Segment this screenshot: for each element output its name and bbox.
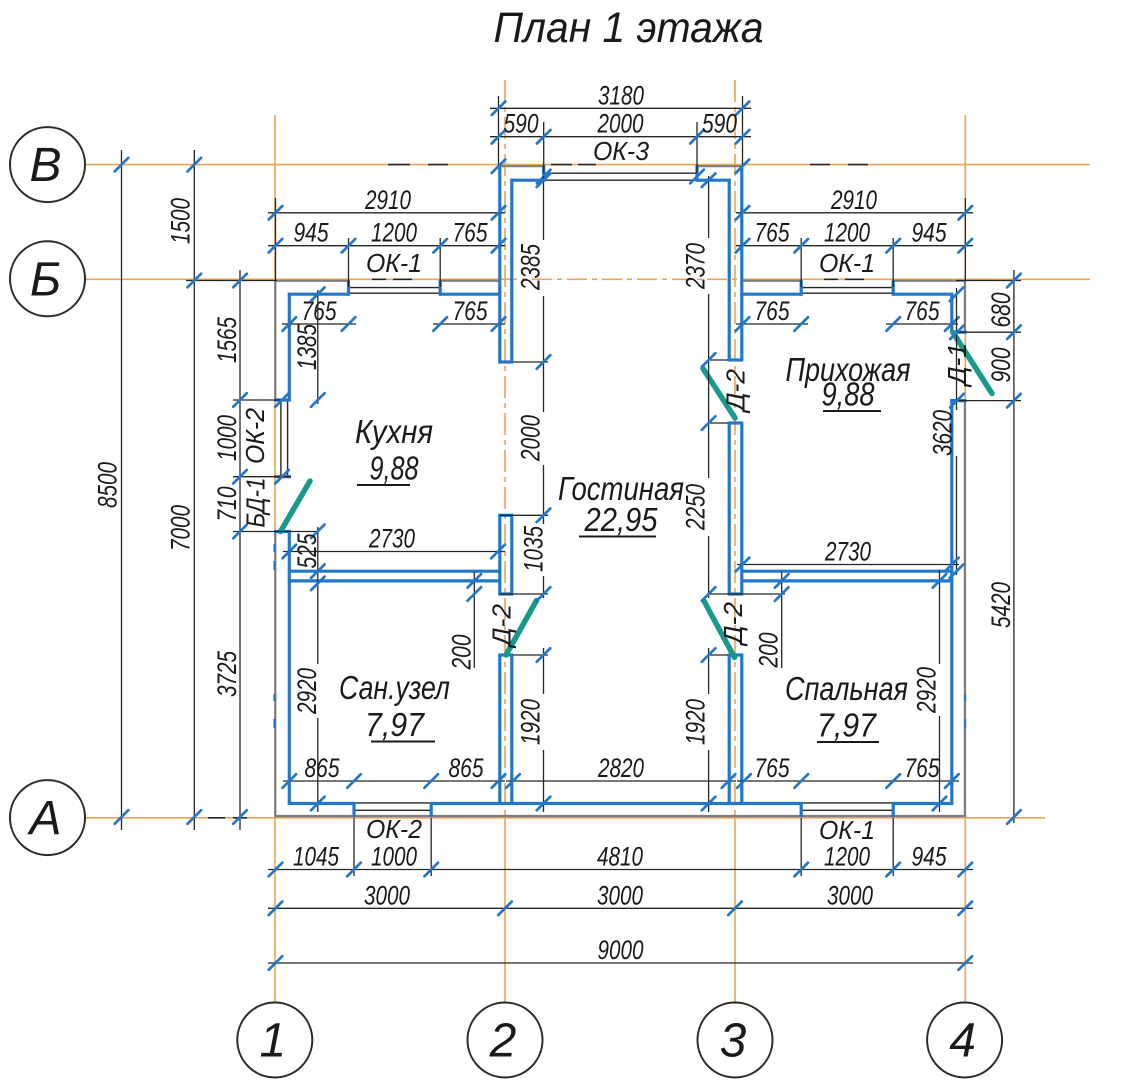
- svg-text:ОК-1: ОК-1: [819, 815, 875, 845]
- svg-text:1: 1: [259, 1015, 286, 1068]
- svg-text:4: 4: [949, 1015, 976, 1068]
- svg-text:ОК-2: ОК-2: [240, 407, 270, 464]
- svg-text:2370: 2370: [681, 243, 711, 290]
- svg-text:2000: 2000: [516, 415, 546, 462]
- svg-text:765: 765: [755, 296, 791, 326]
- svg-text:590: 590: [504, 109, 539, 139]
- svg-text:Кухня: Кухня: [355, 413, 433, 450]
- svg-text:1565: 1565: [212, 316, 242, 363]
- svg-text:765: 765: [453, 218, 489, 248]
- svg-text:ОК-2: ОК-2: [366, 814, 423, 844]
- svg-text:А: А: [26, 792, 61, 845]
- svg-text:7000: 7000: [165, 505, 195, 551]
- svg-text:Д-2: Д-2: [721, 368, 751, 414]
- svg-text:2730: 2730: [368, 524, 415, 554]
- svg-text:5420: 5420: [986, 582, 1016, 628]
- svg-text:3725: 3725: [212, 650, 242, 697]
- svg-text:900: 900: [986, 348, 1016, 383]
- svg-text:200: 200: [446, 635, 476, 671]
- svg-text:3620: 3620: [928, 410, 958, 456]
- svg-text:9,88: 9,88: [822, 376, 876, 413]
- svg-text:3: 3: [720, 1015, 747, 1068]
- svg-text:765: 765: [905, 753, 941, 783]
- svg-text:2920: 2920: [292, 668, 322, 715]
- svg-text:200: 200: [754, 633, 784, 669]
- svg-text:765: 765: [755, 218, 791, 248]
- svg-text:1200: 1200: [824, 842, 870, 872]
- svg-text:22,95: 22,95: [584, 501, 658, 538]
- svg-text:Б: Б: [30, 253, 61, 306]
- svg-text:765: 765: [453, 296, 489, 326]
- svg-text:945: 945: [294, 218, 330, 248]
- svg-text:ОК-1: ОК-1: [819, 248, 875, 278]
- svg-text:1000: 1000: [371, 842, 417, 872]
- svg-text:1000: 1000: [212, 415, 242, 461]
- svg-text:9,88: 9,88: [370, 450, 419, 487]
- svg-text:1035: 1035: [519, 525, 549, 572]
- svg-text:Сан.узел: Сан.узел: [339, 669, 450, 706]
- svg-text:2920: 2920: [912, 667, 942, 714]
- svg-text:2820: 2820: [597, 753, 644, 783]
- svg-text:1200: 1200: [371, 218, 417, 248]
- svg-text:2910: 2910: [364, 185, 411, 215]
- svg-text:945: 945: [912, 842, 948, 872]
- svg-text:Спальная: Спальная: [785, 670, 908, 707]
- svg-text:7,97: 7,97: [817, 707, 878, 744]
- svg-text:590: 590: [702, 109, 737, 139]
- svg-text:1920: 1920: [516, 699, 546, 745]
- svg-text:945: 945: [912, 218, 948, 248]
- svg-text:2910: 2910: [830, 185, 877, 215]
- svg-text:765: 765: [755, 753, 791, 783]
- svg-text:3180: 3180: [598, 80, 644, 110]
- svg-text:710: 710: [212, 487, 242, 522]
- svg-text:Д-2: Д-2: [487, 603, 517, 649]
- svg-text:8500: 8500: [93, 462, 123, 508]
- svg-text:1920: 1920: [681, 699, 711, 745]
- svg-text:3000: 3000: [364, 880, 410, 910]
- svg-text:2385: 2385: [516, 243, 546, 291]
- svg-text:680: 680: [986, 293, 1016, 328]
- svg-text:1500: 1500: [165, 198, 195, 244]
- svg-text:4810: 4810: [597, 842, 643, 872]
- svg-text:2000: 2000: [597, 109, 644, 139]
- svg-text:865: 865: [449, 753, 485, 783]
- svg-text:2730: 2730: [824, 537, 871, 567]
- svg-text:3000: 3000: [597, 880, 643, 910]
- svg-text:1385: 1385: [292, 323, 322, 370]
- svg-text:В: В: [29, 139, 61, 192]
- svg-text:9000: 9000: [598, 935, 644, 965]
- svg-text:1200: 1200: [824, 218, 870, 248]
- svg-text:765: 765: [905, 296, 941, 326]
- svg-text:1045: 1045: [293, 842, 340, 872]
- svg-text:7,97: 7,97: [365, 706, 426, 743]
- svg-text:Д-2: Д-2: [718, 601, 748, 647]
- svg-text:865: 865: [305, 753, 341, 783]
- svg-text:2250: 2250: [681, 484, 711, 531]
- svg-text:План 1 этажа: План 1 этажа: [494, 4, 764, 52]
- svg-text:3000: 3000: [827, 880, 873, 910]
- svg-text:БД-1: БД-1: [241, 478, 271, 528]
- svg-text:2: 2: [489, 1015, 517, 1068]
- svg-text:765: 765: [302, 296, 338, 326]
- svg-text:ОК-3: ОК-3: [593, 136, 650, 166]
- svg-text:ОК-1: ОК-1: [366, 248, 422, 278]
- svg-text:525: 525: [292, 533, 322, 569]
